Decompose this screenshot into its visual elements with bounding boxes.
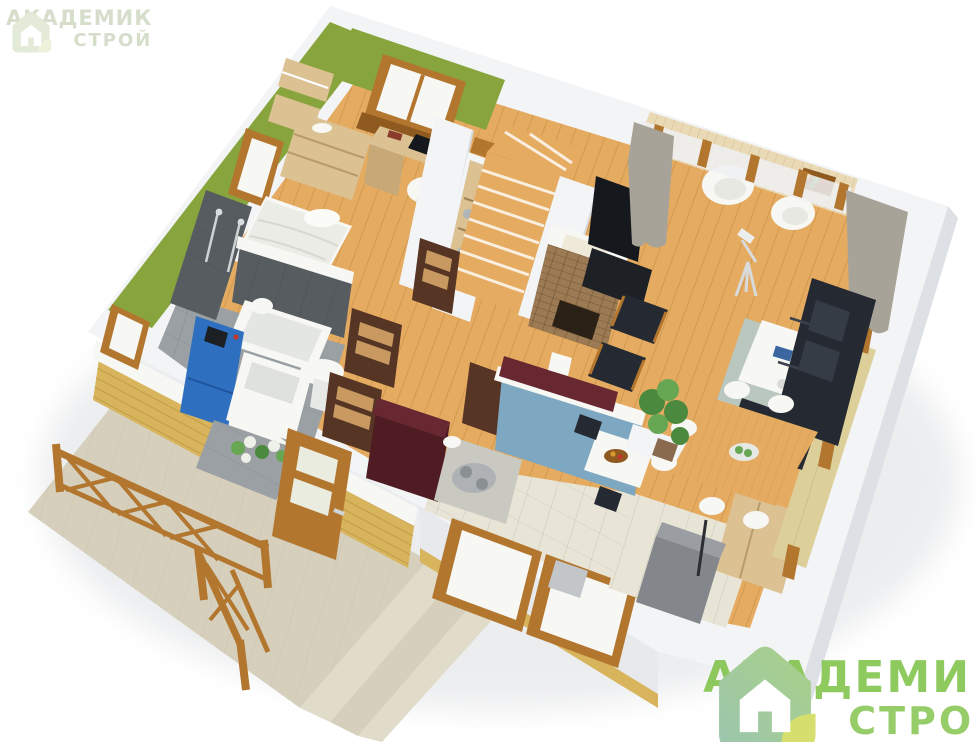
sill-cup-2 xyxy=(597,625,615,639)
stove-burner-2 xyxy=(476,478,488,490)
stove xyxy=(452,463,496,493)
floorplan-render xyxy=(0,0,975,742)
dining-apples-2 xyxy=(744,449,752,457)
dining-apples-1 xyxy=(735,446,743,454)
shower-head-2 xyxy=(238,219,245,226)
bed-pillow xyxy=(304,209,340,227)
dining-bowl xyxy=(729,443,759,461)
sill-cup-1 xyxy=(470,542,486,554)
curtain-left xyxy=(628,122,674,248)
floorplan-image: АКАДЕМИК СТРОЙ АКАДЕМИК СТРОЙ xyxy=(0,0,975,742)
dresser-plate xyxy=(312,123,332,133)
boiler-knob xyxy=(233,334,238,339)
counter-bowl xyxy=(443,436,461,448)
fruit-2 xyxy=(617,454,622,459)
fruit-1 xyxy=(610,451,615,456)
fruit-tray xyxy=(604,449,628,463)
shower-head-1 xyxy=(216,209,223,216)
toilet xyxy=(251,298,273,314)
balcony-armchair-2-seat xyxy=(782,207,808,225)
stove-burner-1 xyxy=(460,466,472,478)
balcony-armchair-1-seat xyxy=(714,178,746,200)
